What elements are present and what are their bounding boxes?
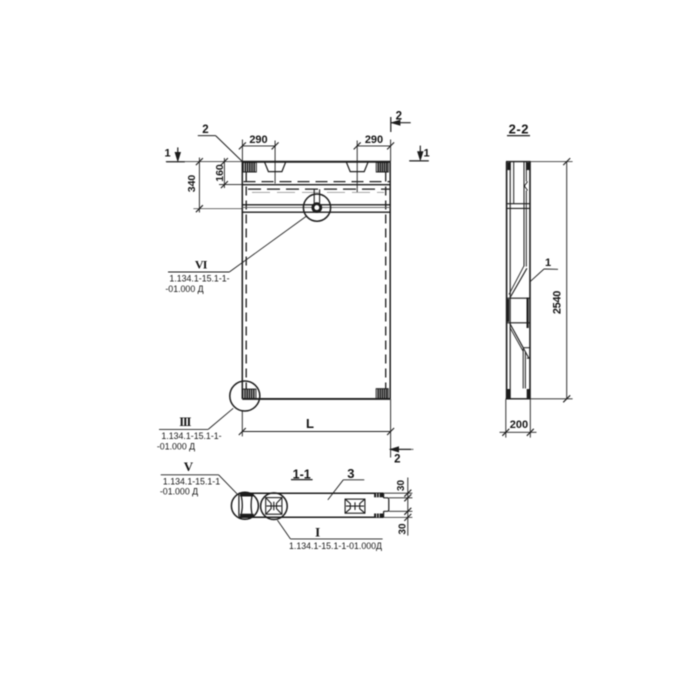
svg-text:3: 3 <box>347 466 354 481</box>
svg-text:-01.000 Д: -01.000 Д <box>160 487 198 497</box>
svg-text:1: 1 <box>423 148 429 160</box>
svg-text:1: 1 <box>545 257 551 269</box>
svg-text:1-1: 1-1 <box>293 467 311 481</box>
svg-text:-01.000 Д: -01.000 Д <box>157 441 195 451</box>
svg-text:1.134.1-15.1-1-: 1.134.1-15.1-1- <box>169 274 229 284</box>
svg-text:-01.000 Д: -01.000 Д <box>165 284 203 294</box>
svg-text:2: 2 <box>396 110 402 122</box>
svg-text:200: 200 <box>510 419 528 431</box>
svg-text:1.134.1-15.1-1-01.000Д: 1.134.1-15.1-1-01.000Д <box>289 541 382 551</box>
svg-text:2540: 2540 <box>552 291 564 314</box>
svg-text:L: L <box>306 416 314 431</box>
svg-text:1.134.1-15.1-1-: 1.134.1-15.1-1- <box>161 431 221 441</box>
svg-text:2: 2 <box>202 124 208 136</box>
svg-text:III: III <box>179 415 191 429</box>
svg-text:340: 340 <box>186 175 198 193</box>
svg-text:VI: VI <box>195 258 208 272</box>
svg-text:290: 290 <box>249 134 267 146</box>
svg-text:I: I <box>315 524 320 539</box>
svg-text:1.134.1-15.1-1: 1.134.1-15.1-1 <box>163 476 220 486</box>
svg-text:30: 30 <box>398 523 409 535</box>
svg-text:2-2: 2-2 <box>509 122 529 137</box>
svg-text:1: 1 <box>164 148 170 160</box>
svg-text:290: 290 <box>365 134 383 146</box>
svg-text:V: V <box>184 459 194 474</box>
svg-text:160: 160 <box>214 164 226 182</box>
svg-text:2: 2 <box>394 454 400 466</box>
svg-text:30: 30 <box>396 480 407 492</box>
